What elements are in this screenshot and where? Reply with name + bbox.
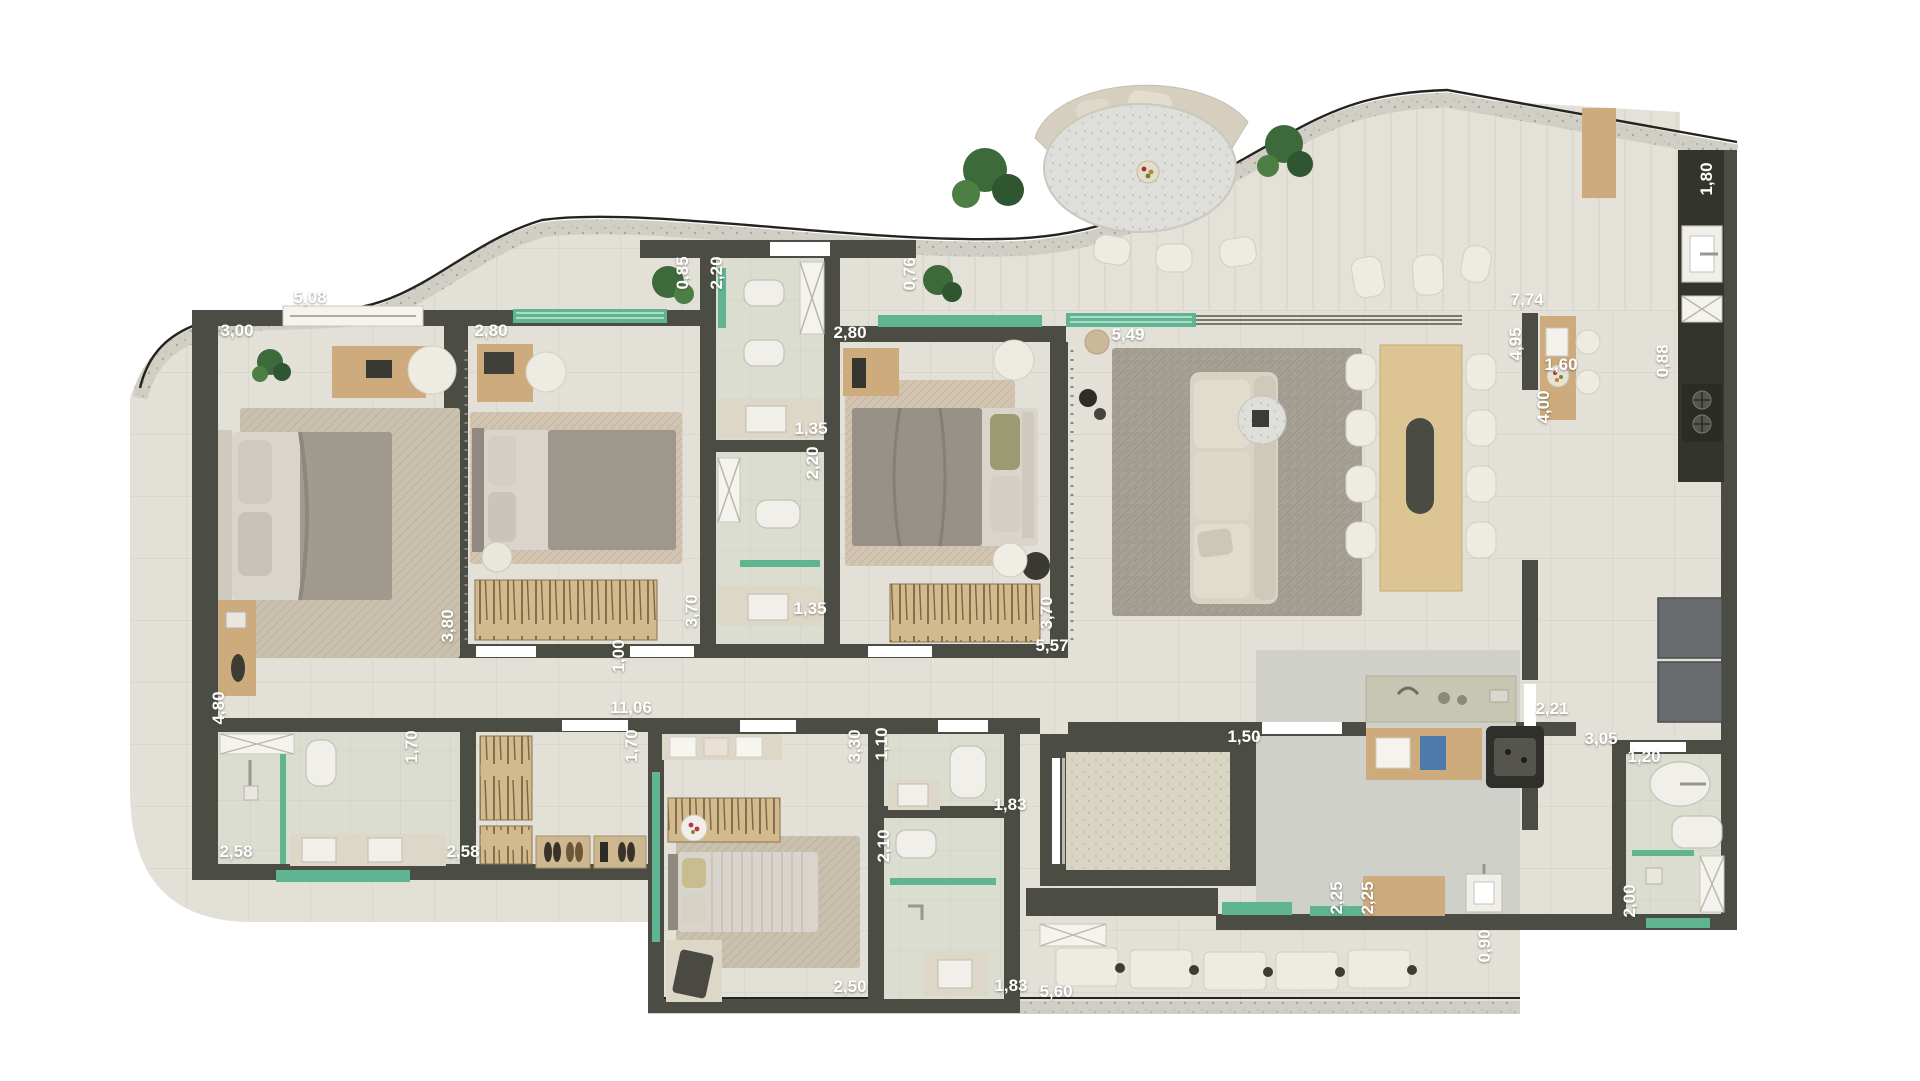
door-bed1 [562,720,628,731]
dimension-label: 3,80 [438,609,457,642]
shoe-box-1 [536,836,590,868]
door-bed2 [630,646,694,657]
bar-stool-2 [1576,370,1600,394]
dimension-label: 2,20 [803,446,822,479]
wall-below-elevator [1026,888,1218,916]
window-bed3-glass [878,315,1042,327]
dimension-label: 1,00 [609,639,628,672]
bed3-lamp-base [993,543,1027,577]
bbq-outlet [1490,690,1508,702]
wall-bath-bed3 [824,258,840,644]
lavabo-toilet [950,746,986,798]
dimension-label: 0,88 [1653,344,1672,377]
dimension-label: 3,05 [1584,729,1617,748]
dimension-label: 2,80 [833,323,866,342]
dimension-label: 2,25 [1327,881,1346,914]
dimension-label: 5,08 [293,288,326,307]
terrace-seat-row [1056,948,1417,990]
dimension-label: 1,83 [993,795,1026,814]
mbath-basin-2 [368,838,402,862]
table-runner [1406,418,1434,514]
bed3-duvet [852,408,982,546]
floor-plan-svg: 5,083,002,800,852,200,762,805,497,744,95… [0,0,1920,1081]
bed2-duvet [548,430,676,550]
dimension-label: 5,57 [1035,636,1068,655]
dimension-label: 1,70 [622,729,641,762]
coffee-blue-item [1420,736,1446,770]
dimension-label: 3,30 [845,729,864,762]
bed1-headboard [218,430,232,602]
bed2-headboard [472,428,484,552]
entry-stool [1085,330,1109,354]
door-service-bed [740,720,796,732]
fruit-bowl [1137,161,1159,183]
bed1-bed [218,430,392,602]
dimension-label: 7,74 [1510,290,1544,309]
sbath-toilet [896,830,936,858]
bed2-laptop [484,352,514,374]
dimension-label: 1,50 [1227,727,1260,746]
dimension-label: 3,00 [220,321,253,340]
bed3-pouf [994,340,1034,380]
sbed-bed [668,852,818,932]
dimension-label: 5,49 [1111,325,1144,344]
sbed-pillow-1 [682,858,706,888]
dimension-label: 2,58 [219,842,252,861]
bed2-bed [472,428,676,552]
bed2-pillow-2 [488,492,516,542]
floor-vase-2 [1094,408,1106,420]
lavabo-basin [898,784,928,806]
bar-papers [1546,328,1568,356]
sbath-shelf [890,878,996,885]
dimension-label: 2,25 [1358,881,1377,914]
bed3-wardrobe [890,584,1040,642]
kitchen-fridge [1658,598,1722,658]
mbath-basin-1 [302,838,336,862]
opening-service-area [1262,722,1342,734]
elevator-door [1052,758,1060,864]
bath-a-bidet [744,340,784,366]
bed3-pillow-2 [990,476,1020,532]
dimension-label: 0,90 [1475,929,1494,962]
bed1-armchair [408,346,456,394]
sbed-pillow-2 [682,894,706,924]
closet-rack-2 [480,826,532,864]
sill-service-1 [1222,902,1292,915]
floor-vase-1 [1079,389,1097,407]
dimension-label: 1,10 [872,727,891,760]
shoe-box-2 [594,836,646,868]
door-closet [476,646,536,657]
bed1-dresser-item [366,360,392,378]
dimension-label: 2,00 [1620,884,1639,917]
bar-stool-1 [1576,330,1600,354]
service-bath-right-wall [1004,734,1020,1013]
dimension-label: 11,06 [610,698,652,717]
dimension-label: 0,76 [900,257,919,290]
dimension-label: 3,70 [682,594,701,627]
bath-b-shelf [740,560,820,567]
sbath-basin [938,960,972,988]
dimension-label: 2,58 [446,842,479,861]
window-service-bed [652,772,660,942]
kitchen-left-wall [1522,560,1538,680]
door-bed3 [868,646,932,657]
elevator-door-track [1062,758,1065,864]
bed2-wardrobe [475,580,657,640]
sofa-pillow [1196,528,1233,558]
dimension-label: 5,60 [1039,982,1072,1001]
coffee-box [1376,738,1410,768]
dimension-label: 1,83 [994,976,1027,995]
dimension-label: 2,10 [874,829,893,862]
bed1-bench-item [226,612,246,628]
door-kitchen [1524,684,1536,728]
dimension-label: 4,00 [1534,390,1553,423]
bath-b-basin [748,594,788,620]
bath-a-toilet [744,280,784,306]
bed3-bed [852,408,1038,546]
sill-right-bath [1646,918,1710,928]
kitchen-stove [1682,384,1722,442]
dimension-label: 1,35 [794,419,827,438]
elevator [1040,734,1256,886]
bed3-headboard [1022,412,1034,538]
dimension-label: 1,80 [1697,162,1716,195]
side-table-decor [1252,410,1269,427]
rbath-drain [1646,868,1662,884]
dimension-label: 2,21 [1535,699,1568,718]
bed2-chair [526,352,566,392]
elevator-cab-floor [1066,752,1230,870]
bed2-floor-lamp [482,542,512,572]
bed1-duvet [300,432,392,600]
window-bed2-glass [513,309,667,323]
door-lavabo [938,720,988,732]
dimension-label: 2,20 [707,256,726,289]
bath-a-basin [746,406,786,432]
corridor-cabinet [662,734,782,760]
dimension-label: 0,85 [673,256,692,289]
bed3-pillow-1 [990,414,1020,470]
bed1-pillow-2 [238,512,272,576]
dimension-label: 1,20 [1627,747,1660,766]
bed3-top-wall [840,326,1066,342]
rbath-toilet [1672,816,1722,848]
rbath-shelf [1632,850,1694,856]
mbath-glass-divider [280,754,286,864]
dimension-label: 3,70 [1037,596,1056,629]
bed3-side-table [843,348,899,396]
floor-plan-page: 5,083,002,800,852,200,762,805,497,744,95… [0,0,1920,1081]
kitchen-freezer [1658,662,1722,722]
kitchen-tall-cabinet [1582,108,1616,198]
closet-rack-1 [480,736,532,820]
entry-door [770,242,830,256]
dimension-label: 4,95 [1506,327,1525,360]
service-bed-right-wall [868,734,884,1006]
sofa-cushion-2 [1194,452,1250,520]
dimension-label: 4,80 [209,691,228,724]
bed3-tv [852,358,866,388]
dimension-label: 1,60 [1544,355,1577,374]
sbed-headboard [668,854,678,930]
left-wall [192,310,218,880]
sill-master-bath [276,870,410,882]
dimension-label: 1,70 [402,730,421,763]
dimension-label: 2,50 [833,977,866,996]
living-room [1079,330,1362,616]
bed1-decor [231,654,245,682]
mbath-toilet [306,740,336,786]
bath-b-toilet [756,500,800,528]
dimension-label: 1,35 [793,599,826,618]
dimension-label: 2,80 [474,321,507,340]
terrace-plant-left [952,148,1024,208]
bed1-pillow-1 [238,440,272,504]
service-area-bottom-wall [1216,914,1520,930]
bed2-pillow-1 [488,436,516,486]
sbed-flower-plate [681,815,707,841]
